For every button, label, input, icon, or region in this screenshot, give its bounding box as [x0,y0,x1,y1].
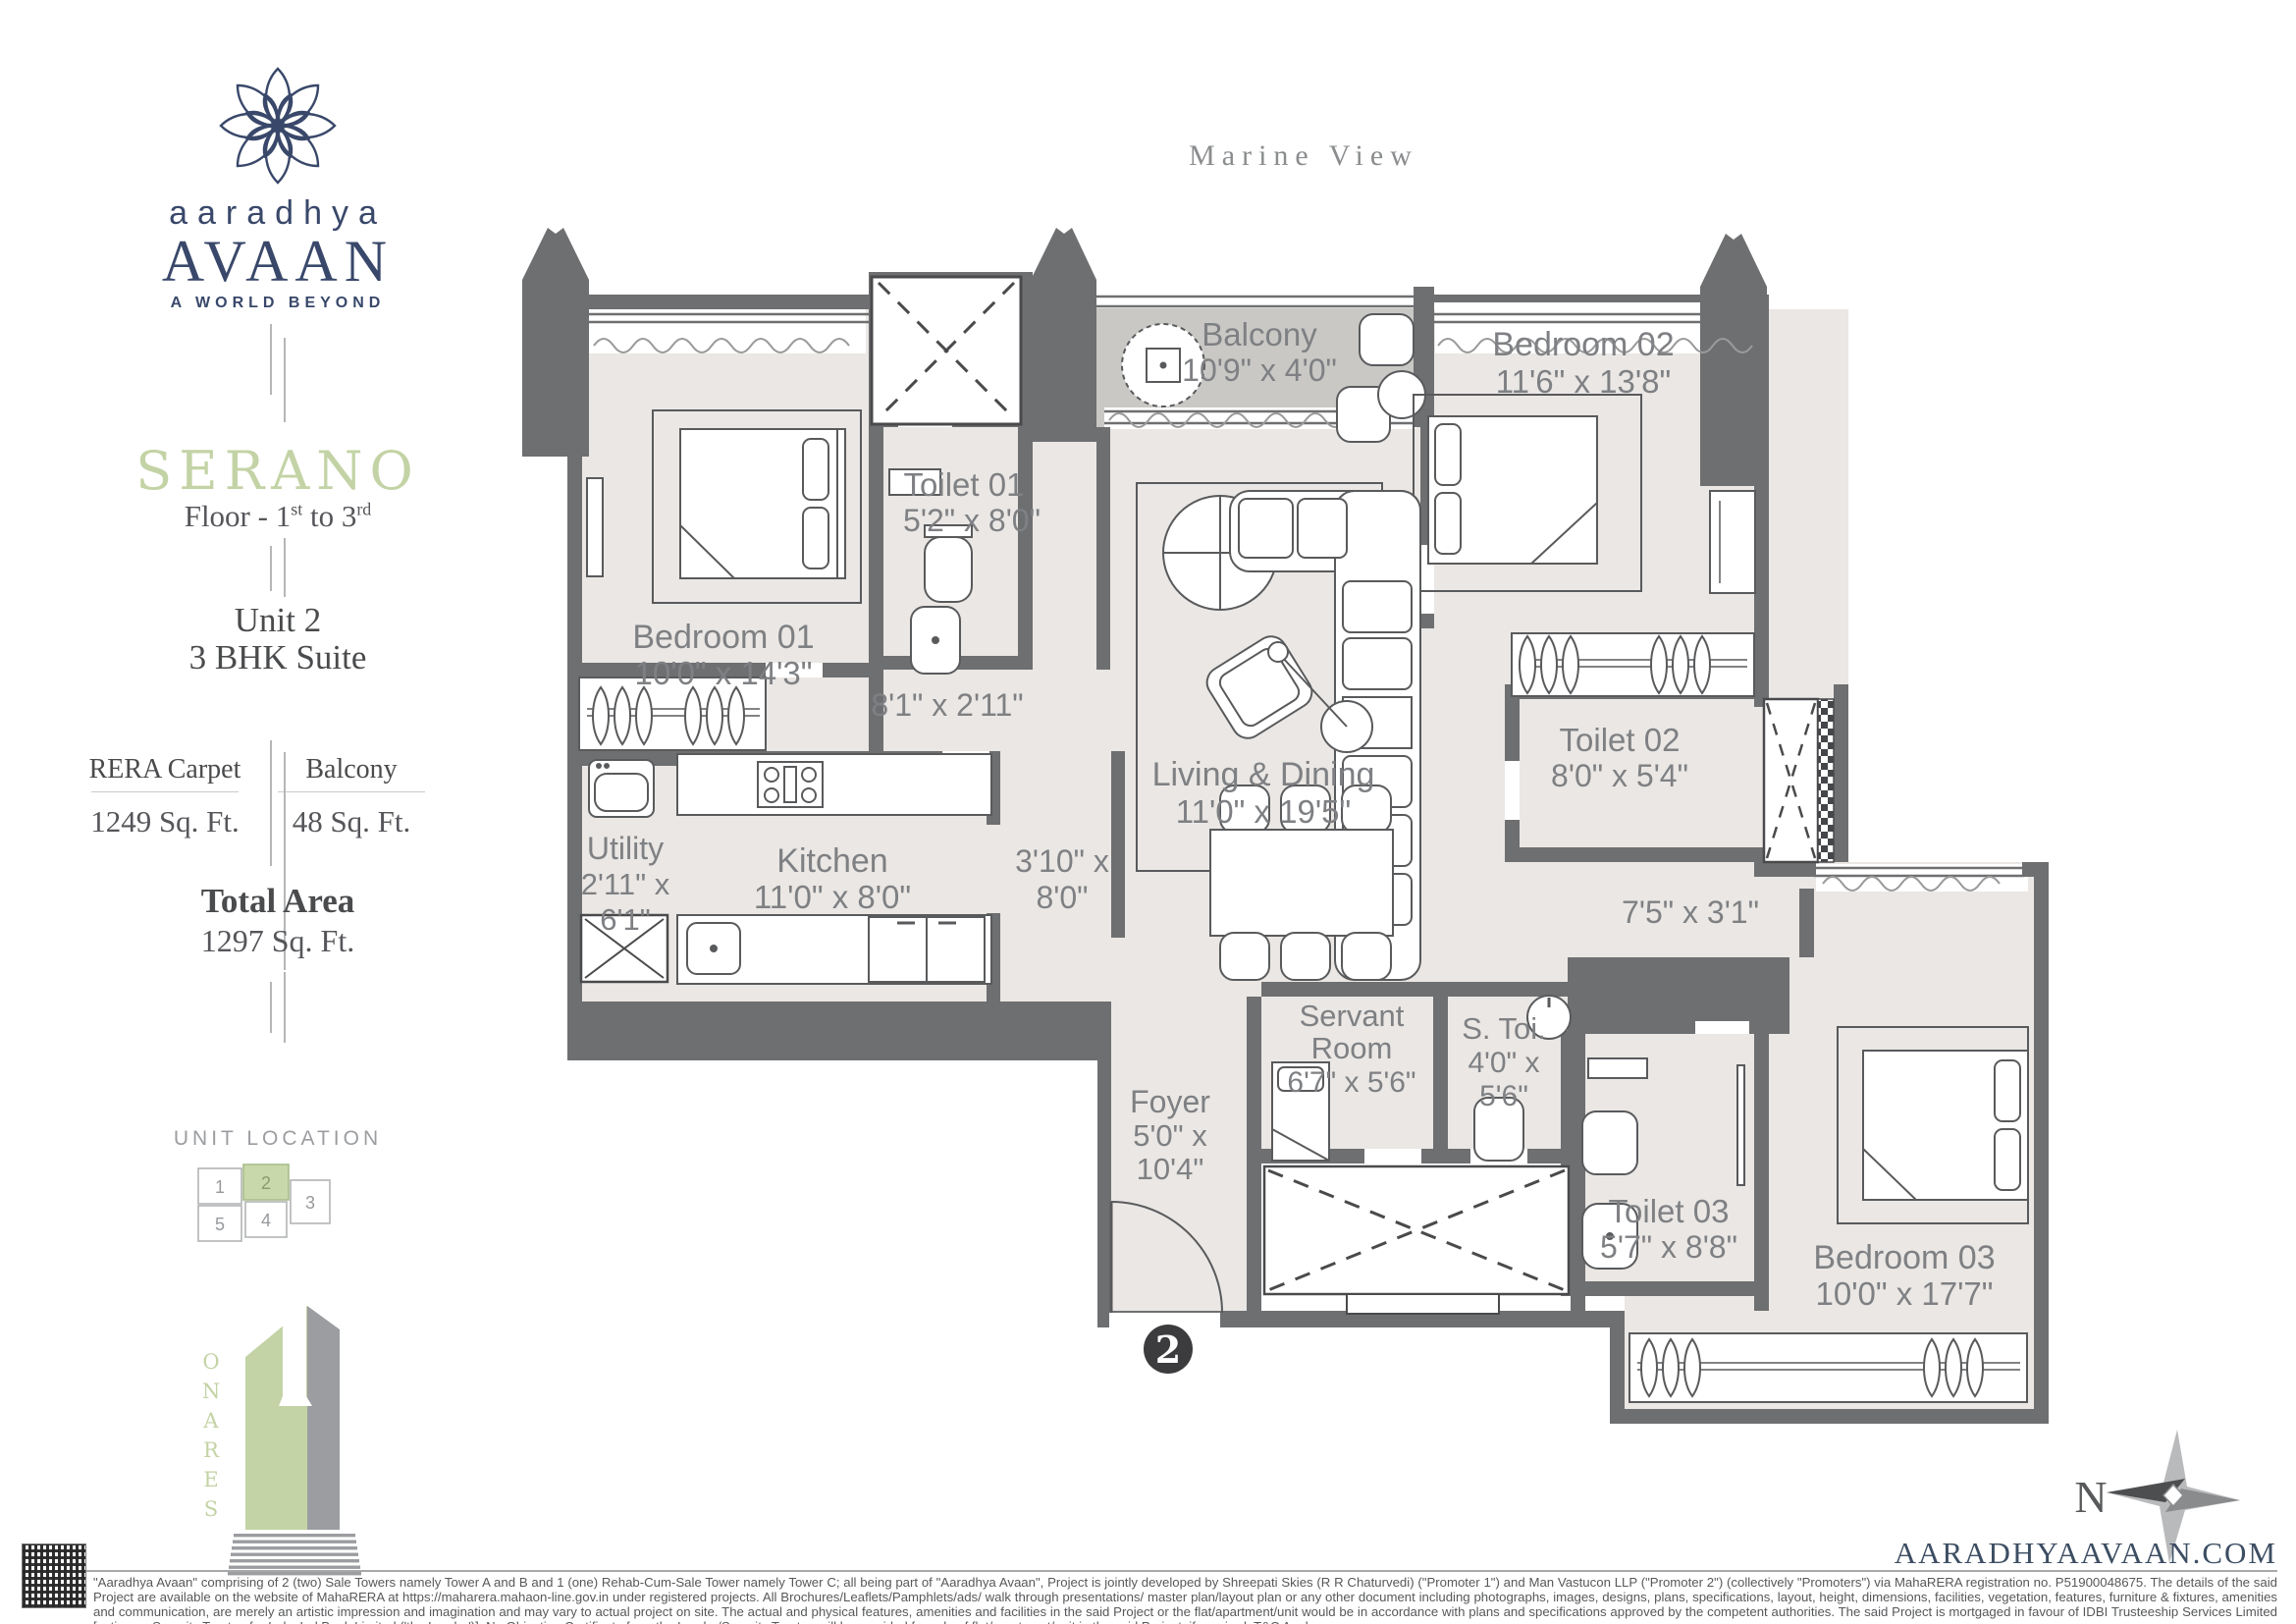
unit-marker-number: 2 [1155,1327,1181,1372]
fridge-icon [869,917,985,982]
room-label-bedroom-03: Bedroom 03 [1813,1239,1995,1276]
website-link[interactable]: AARADHYAAVAAN.COM [1895,1536,2277,1570]
room-dims-utility-1: 2'11" x [581,867,670,901]
room-dims-balcony: 10'9" x 4'0" [1182,352,1337,388]
room-label-s-toi: S. Toi. [1462,1011,1546,1046]
room-dims-s-toi-2: 5'6" [1479,1080,1528,1112]
room-dims-bedroom-03: 10'0" x 17'7" [1816,1275,1994,1312]
room-label-toilet-01: Toilet 01 [904,466,1025,503]
sink-icon [687,923,740,974]
washing-machine-icon [589,760,654,817]
room-label-bedroom-02: Bedroom 02 [1492,326,1674,363]
room-label-balcony: Balcony [1201,316,1317,352]
lift-shaft [1264,1166,1569,1294]
bed-icon [1838,1027,2028,1223]
passage-dims-kitchen-side-1: 3'10" x [1015,843,1109,879]
unit-marker-badge: 2 [1144,1325,1193,1374]
floorplan-brochure-page: aaradhya AVAAN A WORLD BEYOND SERANO Flo… [0,0,2296,1624]
room-label-utility: Utility [587,831,664,866]
passage-dims-bedroom-03-side: 7'5" x 3'1" [1622,894,1759,930]
qr-code-icon [22,1543,86,1608]
chair-icon [1360,314,1414,365]
room-dims-toilet-03: 5'7" x 8'8" [1600,1229,1737,1265]
room-dims-foyer-1: 5'0" x [1133,1118,1207,1153]
room-label-living-dining: Living & Dining [1152,756,1375,793]
stove-icon [758,762,823,807]
floor-plan: Marine View Balcony 10'9" x 4'0" Bedroom… [0,0,2296,1624]
room-dims-bedroom-02: 11'6" x 13'8" [1496,363,1672,400]
disclaimer-text: "Aaradhya Avaan" comprising of 2 (two) S… [93,1575,2277,1624]
compass-north-label: N [2074,1472,2107,1522]
room-dims-toilet-01: 5'2" x 8'0" [903,503,1041,538]
view-label: Marine View [1189,139,1418,172]
passage-dims-corridor: 8'1" x 2'11" [871,687,1023,723]
room-label-toilet-02: Toilet 02 [1560,722,1681,758]
room-dims-servant: 6'7" x 5'6" [1287,1066,1415,1099]
room-dims-s-toi-1: 4'0" x [1468,1047,1539,1079]
room-label-kitchen: Kitchen [776,842,887,880]
room-dims-foyer-2: 10'4" [1137,1152,1204,1186]
passage-dims-kitchen-side-2: 8'0" [1036,880,1088,915]
room-dims-bedroom-01: 10'0" x 14'3" [635,655,813,691]
room-label-servant-1: Servant [1300,999,1405,1033]
room-dims-toilet-02: 8'0" x 5'4" [1551,758,1688,793]
room-label-foyer: Foyer [1130,1084,1210,1119]
room-label-servant-2: Room [1311,1031,1393,1065]
room-label-bedroom-01: Bedroom 01 [632,619,814,656]
room-label-toilet-03: Toilet 03 [1609,1193,1730,1229]
room-dims-kitchen: 11'0" x 8'0" [754,879,911,915]
room-dims-living-dining: 11'0" x 19'5" [1176,793,1352,830]
room-dims-utility-2: 6'1" [600,902,650,937]
